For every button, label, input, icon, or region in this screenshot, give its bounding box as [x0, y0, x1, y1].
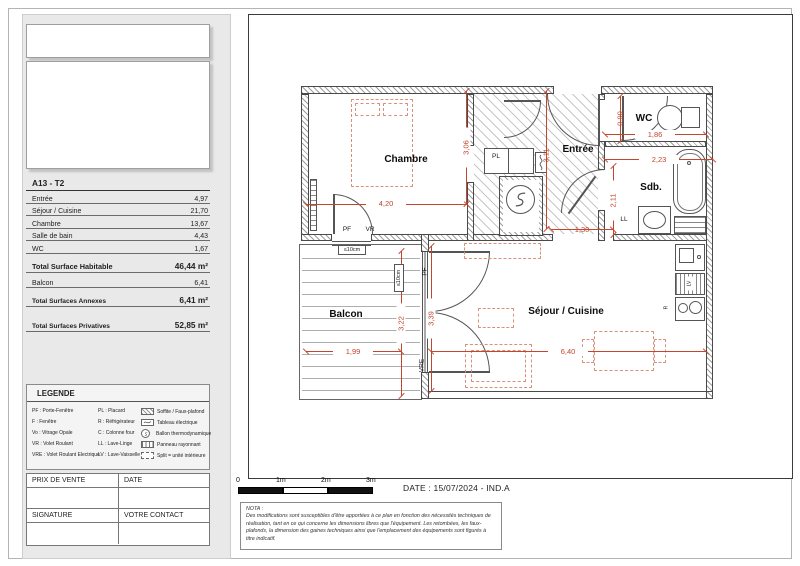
row-value: 13,67 — [190, 221, 208, 228]
total-label: Total Surfaces Privatives — [32, 323, 110, 330]
panneau-rayonnant-swatch-icon — [141, 441, 154, 448]
kitchen-faucet-icon — [697, 255, 701, 259]
contact-label: VOTRE CONTACT — [119, 509, 209, 522]
legend-item: Soffite / Faux-plafond — [157, 409, 204, 415]
wall — [601, 86, 713, 94]
legend-item: C : Colonne four — [98, 428, 141, 439]
legend-symbol-row: Split = unité intérieure — [141, 450, 207, 461]
row-value: 4,97 — [194, 196, 208, 203]
legend-title: LEGENDE — [27, 385, 209, 402]
sale-header-row: PRIX DE VENTE DATE — [27, 474, 209, 488]
legend-col-3: Soffite / Faux-plafond Tableau électriqu… — [141, 406, 207, 461]
dimension-label: 2,11 — [609, 181, 618, 221]
legend-item: Panneau rayonnant — [157, 442, 201, 448]
legend-item: Tableau électrique — [157, 420, 198, 426]
row-label: Salle de bain — [32, 233, 72, 240]
wall — [467, 182, 474, 241]
row-value: 6,41 — [194, 280, 208, 287]
ballon-thermodynamique-icon — [506, 185, 535, 214]
legend-item: VRE : Volet Roulant Electrique — [32, 450, 98, 461]
date-value-cell[interactable] — [119, 488, 209, 508]
tag-vre-vertical: VRE — [419, 354, 426, 378]
row-label: Entrée — [32, 196, 53, 203]
tag-refrigerateur: R — [664, 303, 671, 313]
sidebar-panel: A13 - T2 Entrée 4,97 Séjour / Cuisine 21… — [22, 14, 231, 559]
wall — [301, 94, 309, 241]
sale-table: PRIX DE VENTE DATE SIGNATURE VOTRE CONTA… — [26, 473, 210, 546]
legend-col-1: PF : Porte-Fenêtre F : Fenêtre Vo : Vitr… — [32, 406, 98, 461]
contact-value-cell[interactable] — [119, 523, 209, 544]
dimension-label: 4,20 — [366, 199, 406, 208]
bedroom-french-door-leaf — [333, 194, 335, 234]
room-label-sejour-cuisine: Séjour / Cuisine — [516, 306, 616, 317]
row-value: 21,70 — [190, 208, 208, 215]
total-label: Total Surfaces Annexes — [32, 298, 106, 305]
room-label-wc: WC — [624, 113, 664, 124]
dimension-label: 3,06 — [462, 128, 471, 168]
tag-pl: PL — [488, 153, 504, 160]
dimension-label: 6,40 — [548, 347, 588, 356]
tag-lave-vaisselle: LV — [687, 277, 694, 291]
bathtub-drain-icon — [687, 161, 691, 165]
row-label: Balcon — [32, 280, 53, 287]
legend-box: LEGENDE PF : Porte-Fenêtre F : Fenêtre V… — [26, 384, 210, 470]
room-label-entree: Entrée — [548, 144, 608, 155]
sale-empty-row — [27, 488, 209, 509]
tag-vr: VR — [362, 226, 378, 233]
cooktop-burner-icon — [689, 301, 702, 314]
ballon-thermodynamique-swatch-icon — [141, 429, 150, 438]
total-annexes-row: Total Surfaces Annexes 6,41 m² — [26, 291, 210, 307]
scale-bar-segment — [283, 487, 328, 494]
legend-item: Split = unité intérieure — [157, 453, 206, 459]
scale-bar-segment — [238, 487, 283, 494]
row-value: 4,43 — [194, 233, 208, 240]
prix-de-vente-label: PRIX DE VENTE — [27, 474, 119, 487]
pillow-furniture — [355, 103, 380, 116]
dimension-label: 1,86 — [635, 130, 675, 139]
legend-item: VR : Volet Roulant — [32, 439, 98, 450]
scale-tick-label: 2m — [321, 477, 331, 484]
total-value: 52,85 m² — [175, 320, 208, 330]
room-label-balcon: Balcon — [316, 309, 376, 320]
signature-label: SIGNATURE — [27, 509, 119, 522]
table-row: Chambre 13,67 — [26, 216, 210, 229]
closet-door-leaf — [504, 100, 541, 102]
placard-closet — [484, 148, 534, 174]
legend-item: LL : Lave-Linge — [98, 439, 141, 450]
balcon-row: Balcon 6,41 — [26, 275, 210, 288]
signature-header-row: SIGNATURE VOTRE CONTACT — [27, 509, 209, 523]
entrance-door-leaf — [598, 94, 600, 146]
toilet-tank-icon — [681, 107, 700, 128]
towel-radiator-icon — [674, 216, 706, 234]
tableau-electrique-swatch-icon — [141, 419, 154, 426]
row-label: Séjour / Cuisine — [32, 208, 81, 215]
nota-body: Des modifications sont susceptibles d'êt… — [246, 513, 496, 543]
total-habitable-row: Total Surface Habitable 46,44 m² — [26, 257, 210, 273]
placard-divider — [508, 149, 509, 173]
total-privatives-row: Total Surfaces Privatives 52,85 m² — [26, 316, 210, 332]
date-indice-line: DATE : 15/07/2024 - IND.A — [403, 483, 510, 493]
table-row: Séjour / Cuisine 21,70 — [26, 204, 210, 217]
tag-ll: LL — [616, 216, 632, 223]
wall — [613, 234, 713, 241]
tag-pf-vertical: PF — [422, 264, 429, 280]
legend-col-2: PL : Placard R : Réfrigérateur C : Colon… — [98, 406, 141, 461]
sofa-seat-furniture — [471, 350, 526, 382]
wall — [301, 234, 332, 241]
legend-item: R : Réfrigérateur — [98, 417, 141, 428]
tag-10cm-box-vertical: ≤10cm — [394, 264, 404, 292]
area-table: A13 - T2 Entrée 4,97 Séjour / Cuisine 21… — [26, 175, 210, 332]
legend-item: LV : Lave-Vaisselle — [98, 450, 141, 461]
total-value: 6,41 m² — [179, 295, 208, 305]
signature-value-cell[interactable] — [27, 523, 119, 544]
panneau-rayonnant-icon — [310, 179, 317, 231]
pillow-furniture — [383, 103, 408, 116]
dimension-label: 2,23 — [639, 155, 679, 164]
dimension-label: 3,22 — [397, 304, 406, 344]
prix-value-cell[interactable] — [27, 488, 119, 508]
legend-item: F : Fenêtre — [32, 417, 98, 428]
living-french-door-swing-top — [429, 251, 490, 312]
image-placeholder — [26, 61, 210, 169]
washbasin-icon — [643, 211, 666, 229]
coffee-table-furniture — [478, 308, 514, 328]
dimension-label: 3,11 — [542, 136, 551, 176]
dimension-label: 1,30 — [562, 225, 602, 234]
tag-10cm-box: ≤10cm — [338, 245, 366, 255]
wall — [301, 86, 554, 94]
wall — [421, 234, 429, 252]
scale-tick-label: 1m — [276, 477, 286, 484]
logo-box — [26, 24, 210, 58]
total-value: 46,44 m² — [175, 261, 208, 271]
total-label: Total Surface Habitable — [32, 262, 113, 271]
nota-title: NOTA : — [246, 506, 496, 513]
table-row: Entrée 4,97 — [26, 191, 210, 204]
sideboard-furniture — [464, 243, 541, 259]
dimension-label: 1,99 — [333, 347, 373, 356]
legend-columns: PF : Porte-Fenêtre F : Fenêtre Vo : Vitr… — [27, 402, 209, 461]
cooktop-burner-icon — [678, 303, 688, 313]
row-label: WC — [32, 246, 44, 253]
floor-plan-sheet: A13 - T2 Entrée 4,97 Séjour / Cuisine 21… — [0, 0, 800, 566]
legend-symbol-row: Panneau rayonnant — [141, 439, 207, 450]
scale-tick-label: 0 — [236, 477, 240, 484]
legend-item: Vo : Vitrage Opale — [32, 428, 98, 439]
legend-item: PL : Placard — [98, 406, 141, 417]
unit-title: A13 - T2 — [26, 175, 210, 191]
legend-item: PF : Porte-Fenêtre — [32, 406, 98, 417]
tag-pf: PF — [339, 226, 355, 233]
kitchen-sink-bowl-icon — [679, 248, 694, 263]
date-label: DATE — [119, 474, 209, 487]
room-label-sdb: Sdb. — [626, 182, 676, 193]
row-value: 1,67 — [194, 246, 208, 253]
legend-item: Ballon thermodynamique — [156, 431, 211, 437]
legend-symbol-row: Soffite / Faux-plafond — [141, 406, 207, 417]
dimension-label: 3,39 — [427, 299, 436, 339]
nota-box: NOTA : Des modifications sont susceptibl… — [240, 502, 502, 550]
table-row: WC 1,67 — [26, 241, 210, 254]
scale-tick-label: 3m — [366, 477, 376, 484]
legend-symbol-row: Ballon thermodynamique — [141, 428, 207, 439]
scale-bar-segment — [328, 487, 373, 494]
exterior-wall — [421, 391, 713, 399]
signature-empty-row — [27, 523, 209, 544]
row-label: Chambre — [32, 221, 61, 228]
legend-symbol-row: Tableau électrique — [141, 417, 207, 428]
faux-plafond-swatch-icon — [141, 408, 154, 415]
table-row: Salle de bain 4,43 — [26, 229, 210, 242]
split-unite-swatch-icon — [141, 452, 154, 459]
room-label-chambre: Chambre — [376, 154, 436, 165]
plan-frame: 4,20 3,06 3,11 1,30 0,90 1,86 2,23 2,11 … — [248, 14, 793, 479]
